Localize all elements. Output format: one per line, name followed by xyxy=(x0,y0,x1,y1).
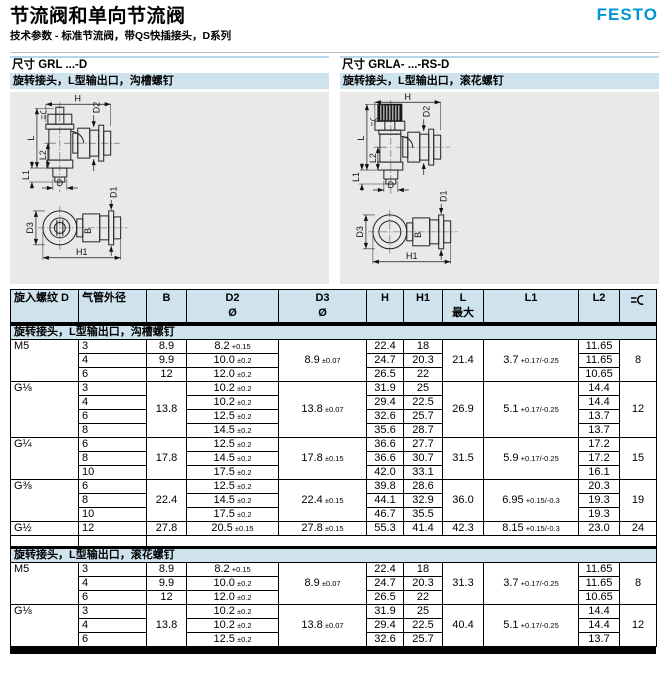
cell-B: 9.9 xyxy=(147,353,187,367)
cell-L: 21.4 xyxy=(443,339,484,381)
cell-L2: 23.0 xyxy=(579,521,620,535)
cell-D3: 8.9 ±0.07 xyxy=(279,562,367,604)
hex-wrench-mark xyxy=(370,118,376,126)
cell-H: 36.6 xyxy=(367,451,404,465)
cell-H: 35.6 xyxy=(367,423,404,437)
cell-D2: 10.2 ±0.2 xyxy=(187,381,279,395)
cell-od: 8 xyxy=(79,423,147,437)
table-row: G⅛313.810.2 ±0.213.8 ±0.0731.92540.45.1 … xyxy=(11,604,657,618)
section-row: 旋转接头，L型输出口，沟槽螺钉 xyxy=(11,324,657,340)
cell-D2: 14.5 ±0.2 xyxy=(187,493,279,507)
panel-desc-grl: 旋转接头，L型输出口，沟槽螺钉 xyxy=(10,73,329,89)
cell-D2: 12.5 ±0.2 xyxy=(187,437,279,451)
cell-D2: 8.2 +0.15 xyxy=(187,562,279,576)
cell-L1: 8.15 +0.15/-0.3 xyxy=(484,521,579,535)
cell-L2: 14.4 xyxy=(579,618,620,632)
spacer-cell xyxy=(79,535,147,547)
cell-od: 6 xyxy=(79,409,147,423)
grl-technical-drawing: H D2 L L2 L1 D xyxy=(10,92,329,284)
dim-label-B: B xyxy=(83,228,93,234)
cell-B: 12 xyxy=(147,590,187,604)
cell-L2: 17.2 xyxy=(579,437,620,451)
cell-H1: 22 xyxy=(404,367,443,381)
cell-L: 36.0 xyxy=(443,479,484,521)
cell-H1: 20.3 xyxy=(404,576,443,590)
cell-H1: 22.5 xyxy=(404,395,443,409)
panel-desc-grla: 旋转接头，L型输出口，滚花螺钉 xyxy=(340,73,659,89)
table-body: 旋转接头，L型输出口，沟槽螺钉M538.98.2 +0.158.9 ±0.072… xyxy=(11,324,657,647)
cell-L1: 6.95 +0.15/-0.3 xyxy=(484,479,579,521)
cell-od: 6 xyxy=(79,479,147,493)
header-rule xyxy=(10,52,660,53)
col-header-od: 气管外径 xyxy=(79,290,147,324)
cell-H: 55.3 xyxy=(367,521,404,535)
cell-L1: 5.9 +0.17/-0.25 xyxy=(484,437,579,479)
cell-H: 29.4 xyxy=(367,395,404,409)
cell-H: 22.4 xyxy=(367,339,404,353)
cell-od: 4 xyxy=(79,618,147,632)
cell-sw: 8 xyxy=(620,562,657,604)
cell-D2: 17.5 ±0.2 xyxy=(187,507,279,521)
cell-H1: 41.4 xyxy=(404,521,443,535)
cell-od: 6 xyxy=(79,367,147,381)
dim-label-D1: D1 xyxy=(109,186,119,197)
cell-L1: 3.7 +0.17/-0.25 xyxy=(484,339,579,381)
col-header-B: B xyxy=(147,290,187,324)
cell-D2: 10.2 ±0.2 xyxy=(187,604,279,618)
cell-od: 12 xyxy=(79,521,147,535)
cell-od: 10 xyxy=(79,465,147,479)
festo-logo: FESTO xyxy=(597,5,658,25)
cell-sw: 19 xyxy=(620,479,657,521)
cell-L: 31.5 xyxy=(443,437,484,479)
cell-thread: G¼ xyxy=(11,437,79,479)
cell-od: 4 xyxy=(79,395,147,409)
dim-label-H: H xyxy=(405,92,411,102)
dim-label-D3: D3 xyxy=(25,222,35,233)
cell-H1: 28.6 xyxy=(404,479,443,493)
cell-H1: 25 xyxy=(404,604,443,618)
cell-H: 46.7 xyxy=(367,507,404,521)
section-row: 旋转接头，L型输出口，滚花螺钉 xyxy=(11,547,657,562)
panel-code-grla: 尺寸 GRLA- ...-RS-D xyxy=(340,58,659,73)
cell-L: 31.3 xyxy=(443,562,484,604)
cell-thread: G½ xyxy=(11,521,79,535)
dim-label-L2: L2 xyxy=(368,153,378,163)
cell-thread: G⅛ xyxy=(11,604,79,646)
valve-top-view: H D2 L L2 L1 D xyxy=(351,92,450,194)
cell-D3: 27.8 ±0.15 xyxy=(279,521,367,535)
cell-H1: 18 xyxy=(404,339,443,353)
cell-L2: 11.65 xyxy=(579,576,620,590)
cell-thread: M5 xyxy=(11,339,79,381)
cell-L2: 14.4 xyxy=(579,381,620,395)
col-header-D2: D2Ø xyxy=(187,290,279,324)
cell-H1: 27.7 xyxy=(404,437,443,451)
dim-label-H1: H1 xyxy=(406,251,417,261)
cell-L: 42.3 xyxy=(443,521,484,535)
spacer-row xyxy=(11,535,657,547)
cell-sw: 12 xyxy=(620,381,657,437)
cell-D2: 20.5 ±0.15 xyxy=(187,521,279,535)
cell-od: 3 xyxy=(79,604,147,618)
cell-H: 26.5 xyxy=(367,590,404,604)
cell-D3: 8.9 ±0.07 xyxy=(279,339,367,381)
grla-technical-drawing: H D2 L L2 L1 D xyxy=(340,92,659,284)
cell-L2: 10.65 xyxy=(579,590,620,604)
col-header-L1: L1 xyxy=(484,290,579,324)
dim-label-D3: D3 xyxy=(355,226,365,237)
cell-H: 32.6 xyxy=(367,409,404,423)
table-row: G⅛313.810.2 ±0.213.8 ±0.0731.92526.95.1 … xyxy=(11,381,657,395)
cell-D2: 14.5 ±0.2 xyxy=(187,423,279,437)
cell-B: 12 xyxy=(147,367,187,381)
cell-L: 26.9 xyxy=(443,381,484,437)
dim-label-L: L xyxy=(356,136,366,141)
page-header: 节流阀和单向节流阀 技术参数 - 标准节流阀，带QS快插接头，D系列 FESTO xyxy=(0,0,670,43)
section-label: 旋转接头，L型输出口，滚花螺钉 xyxy=(11,547,657,562)
col-header-D3: D3Ø xyxy=(279,290,367,324)
dim-label-D2: D2 xyxy=(92,102,102,113)
spacer-cell xyxy=(11,535,79,547)
cell-H1: 22 xyxy=(404,590,443,604)
cell-B: 8.9 xyxy=(147,339,187,353)
cell-L1: 3.7 +0.17/-0.25 xyxy=(484,562,579,604)
cell-H: 24.7 xyxy=(367,576,404,590)
cell-D2: 10.0 ±0.2 xyxy=(187,353,279,367)
cell-L2: 16.1 xyxy=(579,465,620,479)
col-header-H1: H1 xyxy=(404,290,443,324)
cell-B: 17.8 xyxy=(147,437,187,479)
page-title: 节流阀和单向节流阀 xyxy=(10,6,658,28)
page-subtitle: 技术参数 - 标准节流阀，带QS快插接头，D系列 xyxy=(10,30,658,43)
cell-L1: 5.1 +0.17/-0.25 xyxy=(484,604,579,646)
cell-D2: 10.0 ±0.2 xyxy=(187,576,279,590)
cell-H: 22.4 xyxy=(367,562,404,576)
dim-label-D: D xyxy=(388,180,395,190)
col-header-L: L最大 xyxy=(443,290,484,324)
dim-label-H1: H1 xyxy=(76,247,87,257)
table-row: M538.98.2 +0.158.9 ±0.0722.41821.43.7 +0… xyxy=(11,339,657,353)
spacer-cell xyxy=(147,535,657,547)
dim-label-L1: L1 xyxy=(21,170,31,180)
dim-label-B: B xyxy=(413,232,423,238)
valve-bottom-view: B D3 D1 H1 xyxy=(355,190,458,263)
table-row: G¼617.812.5 ±0.217.8 ±0.1536.627.731.55.… xyxy=(11,437,657,451)
dim-label-L2: L2 xyxy=(38,150,48,160)
panel-draw-grla: H D2 L L2 L1 D xyxy=(340,92,659,284)
cell-B: 13.8 xyxy=(147,381,187,437)
cell-od: 8 xyxy=(79,451,147,465)
table-row: G⅜622.412.5 ±0.222.4 ±0.1539.828.636.06.… xyxy=(11,479,657,493)
valve-bottom-view: B D3 D1 H1 xyxy=(25,186,128,259)
cell-D2: 17.5 ±0.2 xyxy=(187,465,279,479)
cell-B: 9.9 xyxy=(147,576,187,590)
cell-H1: 35.5 xyxy=(404,507,443,521)
cell-od: 3 xyxy=(79,381,147,395)
cell-L2: 17.2 xyxy=(579,451,620,465)
cell-od: 3 xyxy=(79,339,147,353)
cell-L2: 19.3 xyxy=(579,507,620,521)
cell-od: 4 xyxy=(79,353,147,367)
cell-od: 6 xyxy=(79,437,147,451)
cell-H: 31.9 xyxy=(367,604,404,618)
cell-thread: G⅛ xyxy=(11,381,79,437)
cell-D2: 12.5 ±0.2 xyxy=(187,479,279,493)
cell-H1: 25 xyxy=(404,381,443,395)
cell-H1: 32.9 xyxy=(404,493,443,507)
cell-H1: 20.3 xyxy=(404,353,443,367)
cell-L2: 10.65 xyxy=(579,367,620,381)
cell-H1: 33.1 xyxy=(404,465,443,479)
type-code: GRL ...-D xyxy=(38,59,87,71)
cell-H: 44.1 xyxy=(367,493,404,507)
cell-B: 8.9 xyxy=(147,562,187,576)
cell-B: 13.8 xyxy=(147,604,187,646)
col-header-H: H xyxy=(367,290,404,324)
cell-H: 24.7 xyxy=(367,353,404,367)
cell-L1: 5.1 +0.17/-0.25 xyxy=(484,381,579,437)
cell-D2: 12.0 ±0.2 xyxy=(187,367,279,381)
dim-label-L1: L1 xyxy=(351,172,361,182)
cell-L2: 13.7 xyxy=(579,632,620,646)
cell-H1: 28.7 xyxy=(404,423,443,437)
dim-word: 尺寸 xyxy=(12,59,35,71)
cell-L: 40.4 xyxy=(443,604,484,646)
cell-H: 42.0 xyxy=(367,465,404,479)
dim-label-D: D xyxy=(57,178,64,188)
cell-D2: 10.2 ±0.2 xyxy=(187,618,279,632)
wrench-icon xyxy=(631,295,645,305)
cell-od: 8 xyxy=(79,493,147,507)
cell-H1: 30.7 xyxy=(404,451,443,465)
cell-L2: 11.65 xyxy=(579,353,620,367)
cell-H: 31.9 xyxy=(367,381,404,395)
dim-label-D2: D2 xyxy=(422,106,432,117)
section-label: 旋转接头，L型输出口，沟槽螺钉 xyxy=(11,324,657,340)
cell-H1: 25.7 xyxy=(404,632,443,646)
cell-D3: 17.8 ±0.15 xyxy=(279,437,367,479)
table-header-row: 旋入螺纹 D气管外径BD2ØD3ØHH1L最大L1L2 xyxy=(11,290,657,324)
dim-label-H: H xyxy=(75,93,81,103)
col-header-L2: L2 xyxy=(579,290,620,324)
cell-H: 39.8 xyxy=(367,479,404,493)
dimensions-table: 旋入螺纹 D气管外径BD2ØD3ØHH1L最大L1L2 旋转接头，L型输出口，沟… xyxy=(10,289,657,647)
cell-sw: 24 xyxy=(620,521,657,535)
type-code: GRLA- ...-RS-D xyxy=(368,59,449,71)
bottom-bar xyxy=(10,647,656,654)
cell-D3: 22.4 ±0.15 xyxy=(279,479,367,521)
cell-D2: 14.5 ±0.2 xyxy=(187,451,279,465)
cell-D3: 13.8 ±0.07 xyxy=(279,381,367,437)
cell-L2: 14.4 xyxy=(579,395,620,409)
panel-grla: 尺寸 GRLA- ...-RS-D 旋转接头，L型输出口，滚花螺钉 xyxy=(340,56,659,284)
cell-H: 26.5 xyxy=(367,367,404,381)
cell-od: 6 xyxy=(79,590,147,604)
cell-D2: 10.2 ±0.2 xyxy=(187,395,279,409)
cell-H: 29.4 xyxy=(367,618,404,632)
col-header-thread: 旋入螺纹 D xyxy=(11,290,79,324)
panel-grl: 尺寸 GRL ...-D 旋转接头，L型输出口，沟槽螺钉 xyxy=(10,56,329,284)
cell-od: 10 xyxy=(79,507,147,521)
cell-D2: 8.2 +0.15 xyxy=(187,339,279,353)
cell-D2: 12.5 ±0.2 xyxy=(187,632,279,646)
cell-H1: 18 xyxy=(404,562,443,576)
panel-code-grl: 尺寸 GRL ...-D xyxy=(10,58,329,73)
cell-H1: 25.7 xyxy=(404,409,443,423)
cell-L2: 11.65 xyxy=(579,339,620,353)
hex-wrench-mark xyxy=(40,111,46,119)
cell-D3: 13.8 ±0.07 xyxy=(279,604,367,646)
cell-H1: 22.5 xyxy=(404,618,443,632)
col-header-sw xyxy=(620,290,657,324)
cell-sw: 12 xyxy=(620,604,657,646)
cell-sw: 8 xyxy=(620,339,657,381)
table-row: M538.98.2 +0.158.9 ±0.0722.41831.33.7 +0… xyxy=(11,562,657,576)
cell-L2: 13.7 xyxy=(579,423,620,437)
table-row: G½1227.820.5 ±0.1527.8 ±0.1555.341.442.3… xyxy=(11,521,657,535)
cell-H: 36.6 xyxy=(367,437,404,451)
cell-od: 6 xyxy=(79,632,147,646)
cell-thread: M5 xyxy=(11,562,79,604)
cell-sw: 15 xyxy=(620,437,657,479)
cell-D2: 12.0 ±0.2 xyxy=(187,590,279,604)
dim-word: 尺寸 xyxy=(342,59,365,71)
cell-thread: G⅜ xyxy=(11,479,79,521)
cell-od: 3 xyxy=(79,562,147,576)
cell-L2: 20.3 xyxy=(579,479,620,493)
cell-H: 32.6 xyxy=(367,632,404,646)
cell-B: 22.4 xyxy=(147,479,187,521)
cell-D2: 12.5 ±0.2 xyxy=(187,409,279,423)
cell-od: 4 xyxy=(79,576,147,590)
cell-L2: 13.7 xyxy=(579,409,620,423)
cell-B: 27.8 xyxy=(147,521,187,535)
cell-L2: 11.65 xyxy=(579,562,620,576)
cell-L2: 19.3 xyxy=(579,493,620,507)
cell-L2: 14.4 xyxy=(579,604,620,618)
dim-label-L: L xyxy=(26,136,36,141)
dim-label-D1: D1 xyxy=(439,190,449,201)
dimension-panels: 尺寸 GRL ...-D 旋转接头，L型输出口，沟槽螺钉 xyxy=(10,56,659,284)
valve-top-view: H D2 L L2 L1 D xyxy=(21,93,120,192)
panel-draw-grl: H D2 L L2 L1 D xyxy=(10,92,329,284)
